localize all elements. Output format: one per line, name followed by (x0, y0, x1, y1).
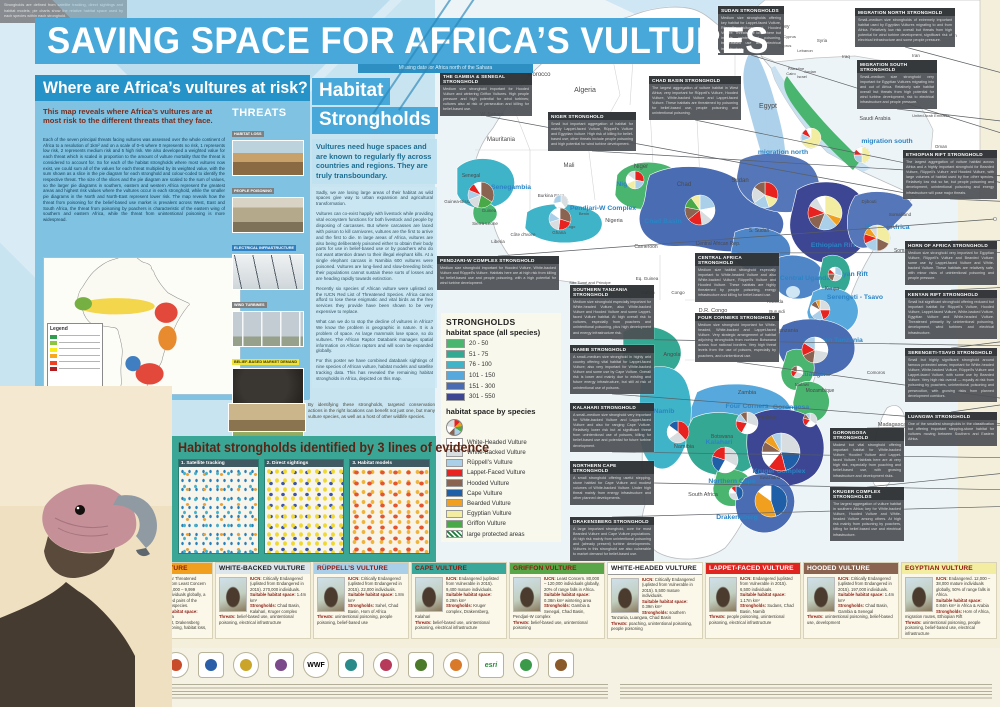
strongholds-paragraphs: Sadly, we are losing large areas of thei… (312, 187, 437, 389)
country-label: Oman (935, 144, 948, 149)
credits-text-left (128, 684, 608, 701)
callout-title: HORN OF AFRICA STRONGHOLD (905, 241, 997, 249)
callout-namib-stronghold: NAMIB STRONGHOLDA small–medium size stro… (570, 345, 654, 394)
callout-body: One of the smallest strongholds in the c… (905, 420, 997, 444)
country-label: Lebanon (797, 48, 813, 53)
strongholds-heading-line2: Strongholds (312, 107, 438, 134)
vulture-eye (75, 505, 85, 515)
legend-species-lf: Lappet-Faced Vulture (446, 469, 556, 477)
partner-logos: WWFesri (128, 652, 574, 678)
legend-bins: 20 - 5051 - 7576 - 100101 - 150151 - 300… (446, 339, 556, 401)
callout-body: Small but highly significant stronghold … (905, 356, 997, 400)
partner-logo (548, 652, 574, 678)
country-label: Sudan (731, 178, 748, 184)
stronghold-label: Drakensberg (716, 514, 758, 521)
country-label: Cameroon (634, 244, 658, 250)
country-label: Iraq (842, 54, 850, 59)
callout-title: SOUTHERN TANZANIA STRONGHOLD (570, 285, 654, 298)
threat-card-electrical-infrastructure: ELECTRICAL INFRASTRUCTURE (232, 236, 304, 290)
legend-species-eg: Egyptian Vulture (446, 510, 556, 518)
legend-all-species-title: habitat space (all species) (446, 328, 556, 337)
country-label: Djibouti (861, 199, 876, 204)
species-card-photo (513, 577, 541, 612)
stronghold-label: migration north (758, 149, 808, 156)
habitat-pie (667, 421, 689, 443)
country-label: Iran (912, 53, 920, 58)
habitat-pie (554, 195, 568, 209)
callout-serengeti-tsavo-stronghold: SERENGETI-TSAVO STRONGHOLDSmall but high… (905, 348, 997, 402)
threat-photo (232, 254, 304, 290)
callout-kruger-complex-strongholds: KRUGER COMPLEX STRONGHOLDSThe largest ag… (830, 487, 904, 541)
country-label: Zambia (738, 390, 757, 396)
callout-title: DRAKENSBERG STRONGHOLD (570, 517, 654, 525)
threat-label: BELIEF-BASED MARKET DEMAND (232, 359, 299, 365)
callout-title: NORTHERN CAPE STRONGHOLD (570, 461, 654, 474)
country-label: Niger (634, 164, 648, 170)
callout-title: PENDJARI-W COMPLEX STRONGHOLD (437, 256, 559, 264)
stronghold-label: Serengeti - Tsavo (827, 294, 883, 301)
country-label: Mauritania (487, 137, 516, 143)
callout-title: MIGRATION NORTH STRONGHOLD (855, 8, 955, 16)
country-label: Guinea (482, 208, 497, 213)
poster-saving-space-for-africas-vultures: { "title": "SAVING SPACE FOR AFRICA\u201… (0, 0, 1000, 707)
callout-central-africa-stronghold: CENTRAL AFRICA STRONGHOLDMedium size hab… (695, 253, 779, 302)
threat-photo (232, 368, 304, 404)
risk-panel-title: Where are Africa’s vultures at risk? (43, 79, 308, 98)
species-card-r-ppell-s-vulture: RÜPPELL’S VULTUREIUCN: Critically Endang… (313, 562, 409, 639)
callout-body: Medium size stronghold important for Hoo… (437, 264, 559, 288)
habitat-pie (712, 447, 738, 473)
stronghold-label: Ethiopian Rift (811, 242, 856, 249)
legend-species-ho: Hooded Vulture (446, 479, 556, 487)
country-label: Sierra Leone (472, 221, 498, 226)
country-label: S. Sudan (749, 228, 770, 234)
credits-text-right (620, 684, 992, 701)
country-label: Chad (677, 182, 691, 188)
species-card-cape-vulture: CAPE VULTUREIUCN: Endangered (uplisted f… (411, 562, 507, 639)
callout-body: A large important stronghold, core for m… (570, 525, 654, 559)
country-label: Swaziland (760, 475, 781, 480)
callout-migration-south-stronghold: MIGRATION SOUTH STRONGHOLDSmall–medium s… (857, 60, 937, 109)
species-card-header: CAPE VULTURE (412, 563, 506, 574)
country-label: Somaliland (889, 212, 912, 217)
country-label: Mali (563, 163, 574, 169)
callout-kenyan-rift-stronghold: KENYAN RIFT STRONGHOLDSmall but signific… (905, 290, 997, 339)
callout-gorongosa-stronghold: GORONGOSA STRONGHOLDModest but vital str… (830, 428, 904, 482)
risk-body-text: Each of the seven principal threats faci… (43, 137, 225, 223)
mini-legend-title: Legend (50, 326, 100, 332)
threat-card-wind-turbines: WIND TURBINES (232, 293, 304, 347)
country-label: Comoros (867, 370, 886, 375)
partner-logo (338, 652, 364, 678)
callout-luangwa-stronghold: LUANGWA STRONGHOLDOne of the smallest st… (905, 412, 997, 446)
callout-body: Small–medium size stronghold very import… (857, 73, 937, 107)
country-label: Namibia (674, 444, 695, 450)
callout-ethiopian-rift-stronghold: ETHIOPIAN RIFT STRONGHOLDThe largest agg… (903, 150, 997, 199)
habitat-pie (801, 128, 821, 148)
species-card-photo (415, 577, 443, 612)
species-card-body: IUCN: Endangered (uplisted from Vulnerab… (706, 574, 800, 627)
callout-body: A small–medium size stronghold very impo… (570, 411, 654, 450)
legend-species-be: Bearded Vulture (446, 499, 556, 507)
species-card-header: WHITE-HEADED VULTURE (608, 563, 702, 575)
species-card-body: IUCN: Endangered (uplisted from Vulnerab… (412, 574, 506, 633)
stronghold-label: Luangwa (800, 371, 830, 378)
conservation-note: By identifying these strongholds, target… (308, 402, 435, 421)
evidence-thumb: 2. Direct sightings (264, 459, 345, 554)
habitat-pie (810, 300, 830, 320)
country-label: Malawi (795, 382, 809, 387)
partner-logo (198, 652, 224, 678)
species-card-photo (611, 578, 639, 613)
callout-title: KENYAN RIFT STRONGHOLD (905, 290, 997, 298)
country-label: Liberia (491, 239, 505, 244)
callout-pendjari-w-complex-stronghold: PENDJARI-W COMPLEX STRONGHOLDMedium size… (437, 256, 559, 290)
legend-by-species-title: habitat space by species (446, 407, 556, 416)
callout-body: Medium size stronghold very important fo… (905, 249, 997, 283)
country-label: Nigeria (605, 218, 623, 224)
evidence-thumb: 3. Habitat models (349, 459, 430, 554)
strongholds-paragraph-1: Sadly, we are losing large areas of thei… (316, 190, 433, 208)
threat-label: HABITAT LOSS (232, 131, 264, 137)
poster-title: SAVING SPACE FOR AFRICA’S VULTURES (47, 20, 769, 62)
callout-title: NIGER STRONGHOLD (548, 112, 636, 120)
strongholds-paragraph-3: Recently six species of African vulture … (316, 286, 433, 316)
threat-photo (232, 197, 304, 233)
evidence-thumb-map (265, 467, 344, 553)
callout-title: FOUR CORNERS STRONGHOLD (695, 313, 779, 321)
callout-title: MIGRATION SOUTH STRONGHOLD (857, 60, 937, 73)
map-legend: STRONGHOLDS habitat space (all species) … (441, 313, 561, 542)
habitat-pie (468, 182, 494, 208)
legend-bin: 76 - 100 (446, 361, 556, 370)
species-card-lappet-faced-vulture: LAPPET-FACED VULTUREIUCN: Endangered (up… (705, 562, 801, 639)
callout-body: The largest aggregation of vulture habit… (903, 158, 997, 197)
habitat-pie (791, 366, 803, 378)
evidence-thumb-label: 2. Direct sightings (265, 460, 344, 467)
mini-map-legend: Legend (47, 323, 103, 393)
vultures-at-carcass-photo (228, 403, 306, 432)
habitat-pie (729, 486, 743, 500)
partner-logo (443, 652, 469, 678)
species-card-body: IUCN: Critically Endangered (uplisted fr… (804, 574, 898, 627)
callout-body: Medium size stronghold important for Hoo… (440, 85, 532, 114)
callout-body: The largest aggregation of vulture habit… (830, 500, 904, 539)
country-label: Mozambique (806, 388, 835, 394)
callout-drakensberg-stronghold: DRAKENSBERG STRONGHOLDA large important … (570, 517, 654, 561)
stronghold-label: Four Corners (725, 403, 768, 410)
habitat-pie (864, 225, 890, 251)
threats-heading: THREATS (232, 107, 304, 119)
habitat-pie (736, 412, 758, 434)
callout-body: Small but significant stronghold offerin… (905, 298, 997, 337)
legend-species-ru: Rüppell's Vulture (446, 459, 556, 467)
risk-panel-header: Where are Africa’s vultures at risk? (35, 75, 310, 101)
callout-title: SUDAN STRONGHOLDS (718, 6, 784, 14)
callout-the-gambia-senegal-stronghold: THE GAMBIA & SENEGAL STRONGHOLDMedium si… (440, 72, 532, 116)
species-cards-row: BEARDED VULTUREIUCN: Near Threatened (up… (117, 562, 1000, 639)
country-label: Angola (663, 352, 681, 358)
stronghold-label: Gorongosa (773, 404, 809, 411)
strongholds-intro: Vultures need huge spaces and are known … (312, 139, 437, 184)
stronghold-label: Namib (654, 408, 675, 415)
habitat-pie (685, 195, 715, 225)
evidence-thumb-map (350, 467, 429, 553)
callout-body: A small stronghold offering useful stepp… (570, 474, 654, 503)
species-card-photo (905, 577, 933, 612)
callout-body: Modest but vital stronghold offering imp… (830, 441, 904, 480)
stronghold-label: Pendjari-W Complex (570, 205, 636, 212)
habitat-pie (802, 337, 828, 363)
legend-bin: 101 - 150 (446, 371, 556, 380)
threat-photo (232, 311, 304, 347)
stronghold-label: Central Uganda (780, 275, 830, 282)
habitat-pie (549, 208, 571, 230)
stronghold-label: Kalahari (706, 439, 733, 446)
callout-body: Small–medium size strongholds of extreme… (855, 16, 955, 45)
callout-title: KALAHARI STRONGHOLD (570, 403, 654, 411)
species-card-hooded-vulture: HOODED VULTUREIUCN: Critically Endangere… (803, 562, 899, 639)
species-card-header: GRIFFON VULTURE (510, 563, 604, 574)
callout-chad-basin-stronghold: CHAD BASIN STRONGHOLDThe largest aggrega… (649, 76, 741, 120)
stronghold-label: migration south (861, 138, 912, 145)
species-card-photo (709, 577, 737, 612)
partner-logo (373, 652, 399, 678)
risk-intro: This map reveals where Africa’s vultures… (43, 107, 223, 126)
stronghold-label: Chad Basin (644, 218, 681, 225)
callout-body: Small but important aggregation of habit… (548, 120, 636, 149)
country-label: Kenya (825, 286, 839, 292)
stronghold-label: Senegambia (491, 184, 531, 191)
partner-logo (268, 652, 294, 678)
threat-photo (232, 140, 304, 176)
habitat-pie (626, 171, 644, 189)
habitat-pie (803, 413, 817, 427)
threat-card-habitat-loss: HABITAT LOSS (232, 122, 304, 176)
habitat-pie (854, 147, 870, 163)
legend-bin: 20 - 50 (446, 339, 556, 348)
species-card-body: IUCN: Critically Endangered (uplisted fr… (314, 574, 408, 627)
legend-protected-areas: large protected areas (446, 530, 556, 538)
legend-bin: 51 - 75 (446, 350, 556, 359)
callout-migration-north-stronghold: MIGRATION NORTH STRONGHOLDSmall–medium s… (855, 8, 955, 47)
country-label: United Arab Emirates (912, 113, 950, 118)
evidence-thumbnails: 1. Satellite tracking2. Direct sightings… (178, 459, 430, 554)
habitat-pie (828, 267, 842, 281)
callout-title: CENTRAL AFRICA STRONGHOLD (695, 253, 779, 266)
callout-title: ETHIOPIAN RIFT STRONGHOLD (903, 150, 997, 158)
threat-label: PEOPLE POISONING (232, 188, 274, 194)
strongholds-paragraph-5: For this poster we have combined databan… (316, 358, 433, 382)
country-label: Congo (671, 290, 685, 295)
callout-body: The largest aggregation of vulture habit… (649, 84, 741, 118)
species-card-header: WHITE-BACKED VULTURE (216, 563, 310, 574)
country-label: Tanzania (776, 328, 799, 334)
callout-body: Medium size stronghold especially import… (570, 298, 654, 337)
title-bar: SAVING SPACE FOR AFRICA’S VULTURES (35, 18, 700, 64)
evidence-panel: Habitat strongholds identified by 3 line… (172, 436, 436, 562)
habitat-strongholds-panel: Habitat Strongholds Vultures need huge s… (312, 78, 437, 388)
country-label: Eq. Guinea (636, 276, 659, 281)
species-card-photo (219, 577, 247, 612)
species-card-photo (317, 577, 345, 612)
species-card-header: EGYPTIAN VULTURE (902, 563, 996, 574)
subtitle-note: Missing data for Africa north of the Sah… (358, 64, 533, 73)
evidence-thumb-label: 1. Satellite tracking (179, 460, 258, 467)
country-label: Central African Rep. (696, 241, 741, 247)
legend-species-ca: Cape Vulture (446, 489, 556, 497)
country-label: Saudi Arabia (859, 116, 891, 122)
habitat-pie (762, 433, 800, 471)
callout-body: Medium size habitat stronghold especiall… (695, 266, 779, 300)
callout-body: Medium size stronghold important for Whi… (695, 321, 779, 360)
callout-northern-cape-stronghold: NORTHERN CAPE STRONGHOLDA small strongho… (570, 461, 654, 505)
vulture-eye-highlight (77, 507, 80, 510)
country-label: Senegal (462, 173, 480, 179)
species-card-body: IUCN: Least Concern. 80,000 – 120,000 in… (510, 574, 604, 633)
species-card-egyptian-vulture: EGYPTIAN VULTUREIUCN: Endangered. 12,000… (901, 562, 997, 639)
species-card-header: HOODED VULTURE (804, 563, 898, 574)
callout-body: A small–medium size stronghold in highly… (570, 353, 654, 392)
species-card-white-backed-vulture: WHITE-BACKED VULTUREIUCN: Critically End… (215, 562, 311, 639)
species-card-griffon-vulture: GRIFFON VULTUREIUCN: Least Concern. 80,0… (509, 562, 605, 639)
country-label: Ghana (552, 230, 566, 235)
country-label: South Africa (688, 492, 719, 498)
legend-species-gr: Griffon Vulture (446, 520, 556, 528)
callout-title: KRUGER COMPLEX STRONGHOLDS (830, 487, 904, 500)
callout-title: CHAD BASIN STRONGHOLD (649, 76, 741, 84)
callout-kalahari-stronghold: KALAHARI STRONGHOLDA small–medium size s… (570, 403, 654, 452)
legend-bin: 301 - 550 (446, 393, 556, 402)
species-card-header: RÜPPELL’S VULTURE (314, 563, 408, 574)
habitat-pie (755, 485, 787, 517)
strongholds-paragraph-2: Vultures can co-exist happily with lives… (316, 211, 433, 282)
legend-title: STRONGHOLDS (446, 317, 556, 327)
callout-title: GORONGOSA STRONGHOLD (830, 428, 904, 441)
habitat-pie (808, 196, 842, 230)
callout-title: NAMIB STRONGHOLD (570, 345, 654, 353)
callout-four-corners-stronghold: FOUR CORNERS STRONGHOLDMedium size stron… (695, 313, 779, 362)
partner-logo (408, 652, 434, 678)
evidence-thumb: 1. Satellite tracking (178, 459, 259, 554)
legend-bin: 151 - 300 (446, 382, 556, 391)
stronghold-label: Northern Cape (708, 478, 755, 485)
callout-title: LUANGWA STRONGHOLD (905, 412, 997, 420)
callout-niger-stronghold: NIGER STRONGHOLDSmall but important aggr… (548, 112, 636, 151)
pie-chart-icon (446, 419, 463, 436)
wwf-logo: WWF (303, 652, 329, 678)
threat-card-belief-based-market-demand: BELIEF-BASED MARKET DEMAND (232, 350, 304, 404)
partner-logo (233, 652, 259, 678)
callout-title: THE GAMBIA & SENEGAL STRONGHOLD (440, 72, 532, 85)
country-label: Israel (797, 74, 807, 79)
lake-victoria (786, 286, 800, 298)
evidence-heading: Habitat strongholds identified by 3 line… (178, 440, 412, 455)
country-label: Côte d'Ivoire (510, 232, 536, 237)
lappet-faced-vulture-photo (0, 386, 172, 707)
species-card-photo (807, 577, 835, 612)
species-card-white-headed-vulture: WHITE-HEADED VULTUREIUCN: Critically End… (607, 562, 703, 639)
habitat-pie (752, 182, 778, 208)
callout-title: SERENGETI-TSAVO STRONGHOLD (905, 348, 997, 356)
species-card-body: IUCN: Endangered. 12,000 – 38,000 mature… (902, 574, 996, 638)
country-label: Algeria (574, 87, 596, 94)
risk-panel: Where are Africa’s vultures at risk? Thi… (35, 75, 310, 400)
strongholds-heading-line1: Habitat (312, 78, 390, 105)
country-label: Syria (817, 38, 828, 43)
strongholds-paragraph-4: What can we do to stop the decline of vu… (316, 319, 433, 355)
evidence-thumb-map (179, 467, 258, 553)
partner-logo (513, 652, 539, 678)
callout-southern-tanzania-stronghold: SOUTHERN TANZANIA STRONGHOLDMedium size … (570, 285, 654, 339)
species-card-body: IUCN: Critically Endangered (uplisted fr… (608, 575, 702, 634)
callout-horn-of-africa-stronghold: HORN OF AFRICA STRONGHOLDMedium size str… (905, 241, 997, 285)
country-label: Egypt (759, 103, 777, 110)
species-card-header: LAPPET-FACED VULTURE (706, 563, 800, 574)
species-card-body: IUCN: Critically Endangered (uplisted fr… (216, 574, 310, 627)
country-label: Cairo (786, 71, 796, 76)
threat-label: ELECTRICAL INFRASTRUCTURE (232, 245, 296, 251)
evidence-thumb-label: 3. Habitat models (350, 460, 429, 467)
esri-logo: esri (478, 652, 504, 678)
threat-card-people-poisoning: PEOPLE POISONING (232, 179, 304, 233)
threat-label: WIND TURBINES (232, 302, 267, 308)
